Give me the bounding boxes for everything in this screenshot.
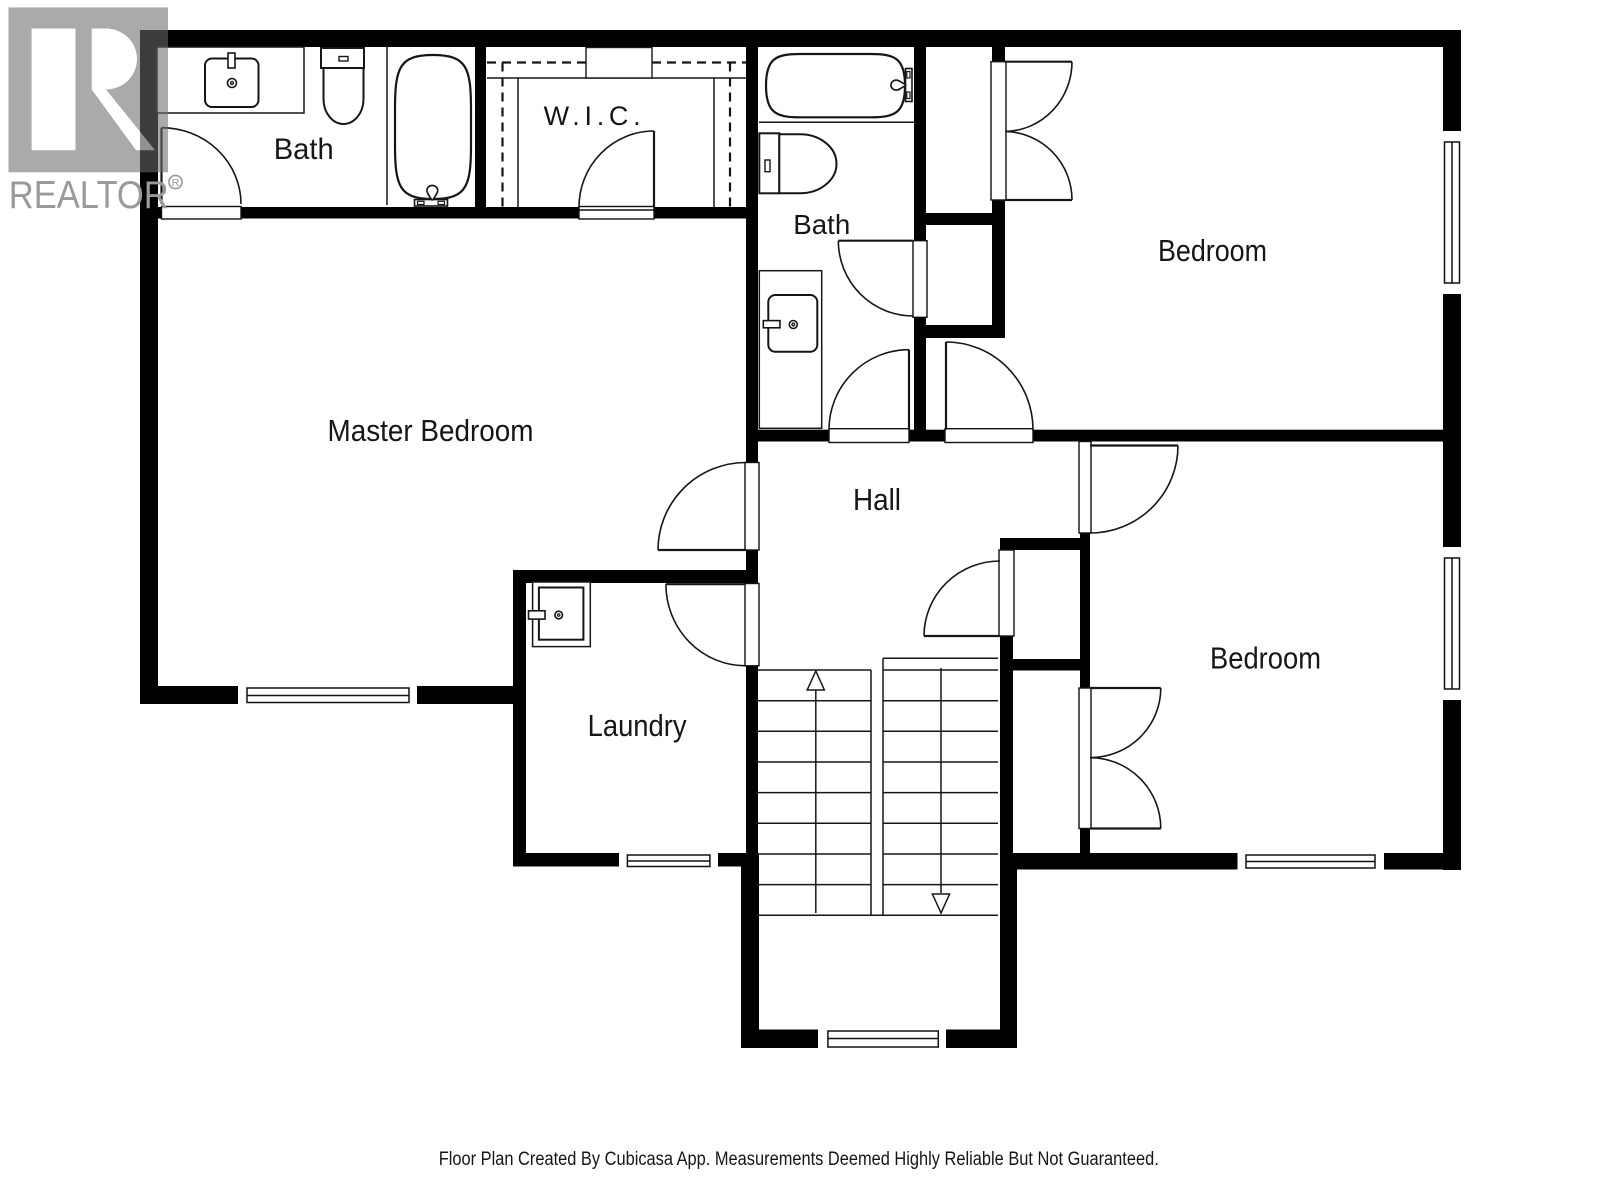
svg-text:REALTOR: REALTOR — [9, 174, 169, 217]
svg-text:Bath: Bath — [274, 133, 334, 166]
svg-text:Laundry: Laundry — [588, 708, 687, 743]
svg-text:Master Bedroom: Master Bedroom — [328, 413, 534, 448]
svg-text:R: R — [172, 177, 180, 189]
svg-text:Bath: Bath — [793, 209, 850, 240]
svg-text:Floor Plan Created By Cubicasa: Floor Plan Created By Cubicasa App. Meas… — [439, 1149, 1159, 1170]
svg-text:Bedroom: Bedroom — [1210, 641, 1321, 676]
svg-text:Bedroom: Bedroom — [1158, 233, 1267, 268]
svg-text:Hall: Hall — [853, 482, 901, 517]
